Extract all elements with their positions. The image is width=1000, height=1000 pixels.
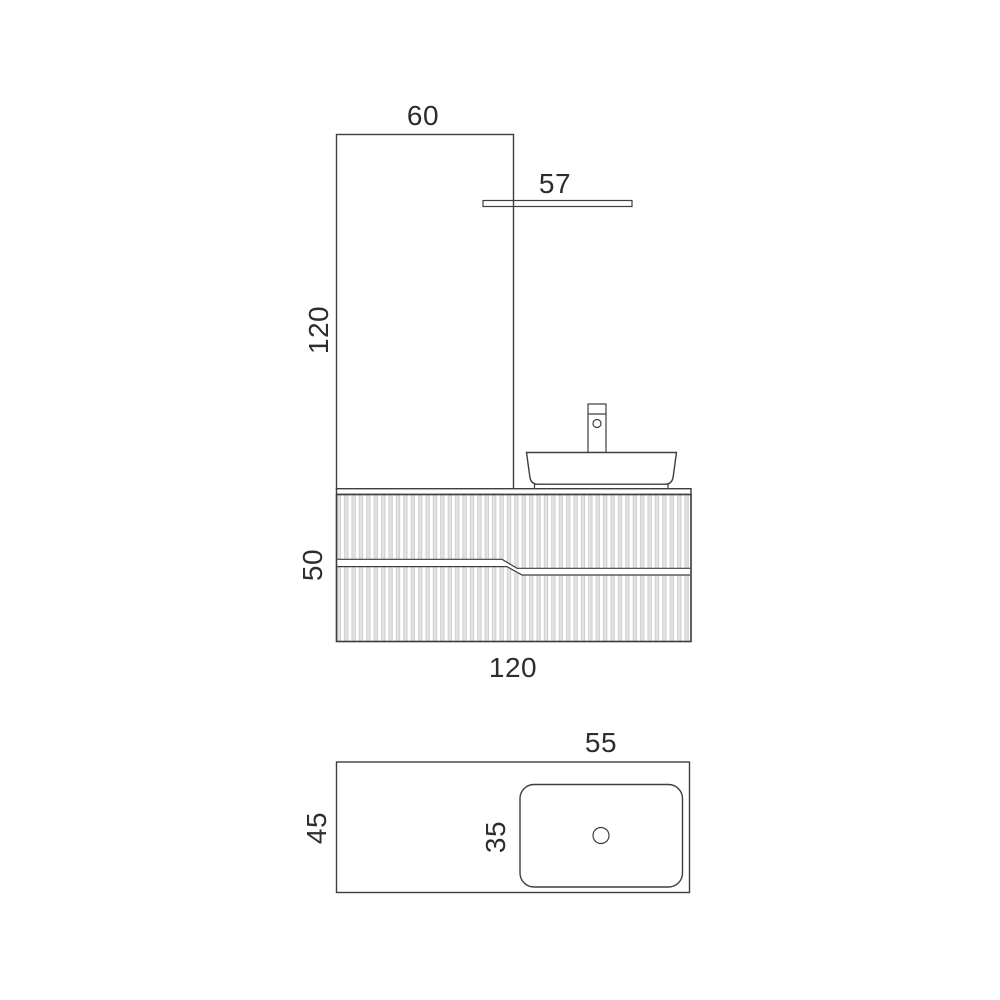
cabinet-width-label: 120 xyxy=(489,652,537,683)
shelf-width-label: 57 xyxy=(539,168,571,199)
mirror-panel xyxy=(337,135,514,490)
mirror-width-label: 60 xyxy=(407,100,439,131)
countertop xyxy=(337,489,692,495)
faucet xyxy=(588,404,606,453)
cabinet-height-label: 50 xyxy=(297,549,328,581)
plan-countertop xyxy=(337,762,690,893)
faucet-button xyxy=(593,420,601,428)
faucet-body xyxy=(588,404,606,453)
washbasin-front xyxy=(527,453,677,485)
counter-depth-label: 45 xyxy=(301,812,332,844)
basin-width-label: 55 xyxy=(585,727,617,758)
drawing-canvas: 60 57 120 50 120 55 45 35 xyxy=(0,0,1000,1000)
front-elevation-view: 60 57 120 50 120 xyxy=(297,100,691,683)
mirror-height-label: 120 xyxy=(303,306,334,354)
basin-depth-label: 35 xyxy=(480,821,511,853)
plan-view: 55 45 35 xyxy=(301,727,690,893)
vanity-technical-drawing: 60 57 120 50 120 55 45 35 xyxy=(0,0,1000,1000)
